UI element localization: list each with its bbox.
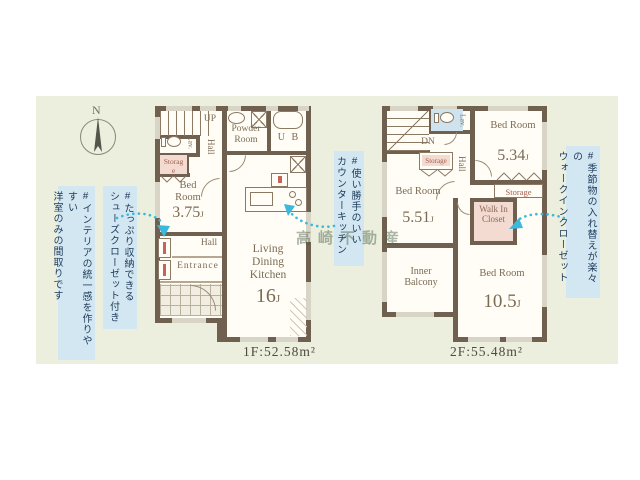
toilet-tank <box>434 113 439 123</box>
compass-circle <box>80 119 116 155</box>
stairs-up-label: UP <box>198 114 222 125</box>
bedroom-105-size: 10.5J <box>472 292 532 311</box>
bedroom-534-size: 5.34J <box>488 148 538 164</box>
wall <box>160 232 222 236</box>
annotation-walk-in-closet: #季節物の入れ替えが楽々の ウォークインクローゼット <box>566 146 600 298</box>
window <box>542 122 547 170</box>
window <box>382 252 387 302</box>
bedroom-375-label: Bed Room <box>166 180 210 204</box>
hall-upper-label: Hall <box>206 133 216 160</box>
inner-balcony-label: Inner Balcony <box>394 266 448 288</box>
window <box>155 182 160 218</box>
hall-label-2f: Hall <box>457 150 467 178</box>
wall <box>453 198 458 312</box>
unit-bath-label: U B <box>274 132 304 143</box>
lavatory-label-2f: Lav. <box>458 110 466 132</box>
cabinet-mark <box>163 242 166 254</box>
floor1-area-label: 1F:52.58m² <box>243 344 316 360</box>
window <box>382 162 387 217</box>
balcony-opening <box>396 312 434 317</box>
window <box>298 106 309 111</box>
annotation-interior: #インテリアの統一感を作りやすい 洋室のみの間取りです <box>58 186 95 360</box>
floor2-area-label: 2F:55.48m² <box>450 344 523 360</box>
annotation-shoe-closet: #たっぷり収納できる シューズクローゼット付き <box>103 186 137 329</box>
sink-icon <box>228 112 245 124</box>
kitchen-sink <box>250 192 273 206</box>
stove-burner <box>295 199 302 206</box>
bedroom-375-size: 3.75J <box>166 205 210 221</box>
hall-lower-label: Hall <box>196 238 222 249</box>
entrance-step <box>172 256 222 258</box>
ldk-size: 16J <box>235 286 301 306</box>
stairs-down-label: DN <box>417 137 439 148</box>
powder-room-label: Powder Room <box>226 124 266 145</box>
bathtub-icon <box>273 111 303 129</box>
annotation-counter-kitchen: #使い勝手のいい カウンターキッチン <box>334 151 364 266</box>
bedroom-534-label: Bed Room <box>488 120 538 132</box>
wall <box>267 111 271 151</box>
window <box>506 337 532 342</box>
entrance-label: Entrance <box>174 261 222 272</box>
bedroom-551-size: 5.51J <box>392 210 444 226</box>
window <box>228 106 241 111</box>
toilet-icon <box>440 112 454 123</box>
window <box>276 337 298 342</box>
window <box>468 337 500 342</box>
bedroom-105-label: Bed Room <box>472 268 532 280</box>
cupboard-mark <box>278 176 282 183</box>
watermark: 高崎不動産 <box>296 227 406 248</box>
entrance-opening <box>172 318 206 323</box>
compass-north-label: N <box>92 103 101 118</box>
walk-in-closet-label: Walk In Closet <box>474 204 513 224</box>
lavatory-label: Lav. <box>186 132 194 154</box>
storage2-label: Storage <box>496 187 541 198</box>
storage-small-label: Storage <box>423 157 449 166</box>
toilet-tank <box>161 137 166 147</box>
ldk-label: Living Dining Kitchen <box>235 243 301 282</box>
cabinet-mark <box>163 264 166 276</box>
porch-step <box>160 281 222 283</box>
floorplan-flyer: UP Lav. Hall Powder Room U B Storage Bed… <box>0 0 640 480</box>
toilet-icon <box>167 136 181 147</box>
window <box>488 106 528 111</box>
window <box>240 337 268 342</box>
refrigerator-icon <box>290 156 306 173</box>
bedroom-551-label: Bed Room <box>392 186 444 198</box>
stove-burner <box>289 191 296 198</box>
storage-label: Storage <box>163 157 184 176</box>
window <box>542 255 547 307</box>
